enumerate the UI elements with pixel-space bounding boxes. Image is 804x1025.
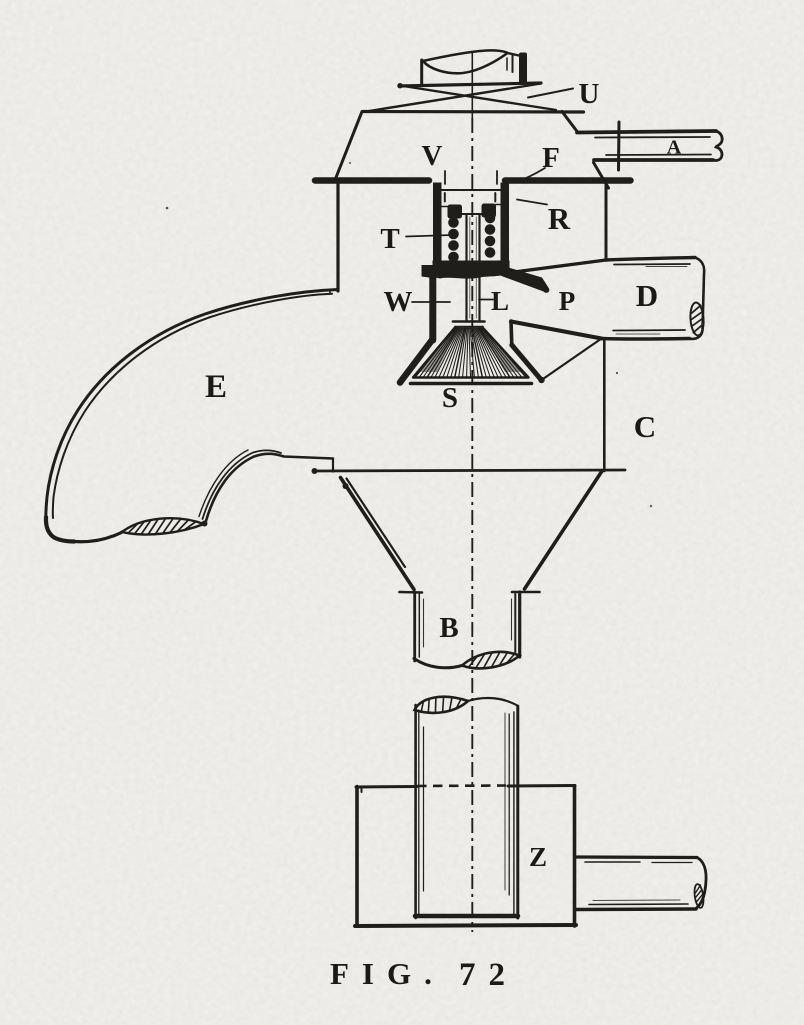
svg-text:R: R	[548, 201, 571, 236]
svg-text:B: B	[439, 612, 458, 644]
svg-text:V: V	[422, 140, 443, 172]
svg-text:72: 72	[459, 957, 518, 993]
svg-text:FIG.: FIG.	[330, 956, 445, 991]
svg-text:T: T	[380, 223, 399, 255]
svg-text:F: F	[542, 142, 560, 174]
svg-text:U: U	[579, 78, 600, 110]
svg-text:S: S	[442, 382, 458, 414]
svg-text:Z: Z	[529, 842, 547, 872]
svg-text:L: L	[491, 286, 509, 316]
svg-text:A: A	[667, 137, 682, 159]
svg-text:P: P	[559, 286, 576, 316]
svg-text:W: W	[384, 286, 413, 318]
svg-text:C: C	[634, 409, 656, 444]
svg-text:D: D	[636, 278, 658, 313]
svg-text:E: E	[205, 369, 227, 405]
